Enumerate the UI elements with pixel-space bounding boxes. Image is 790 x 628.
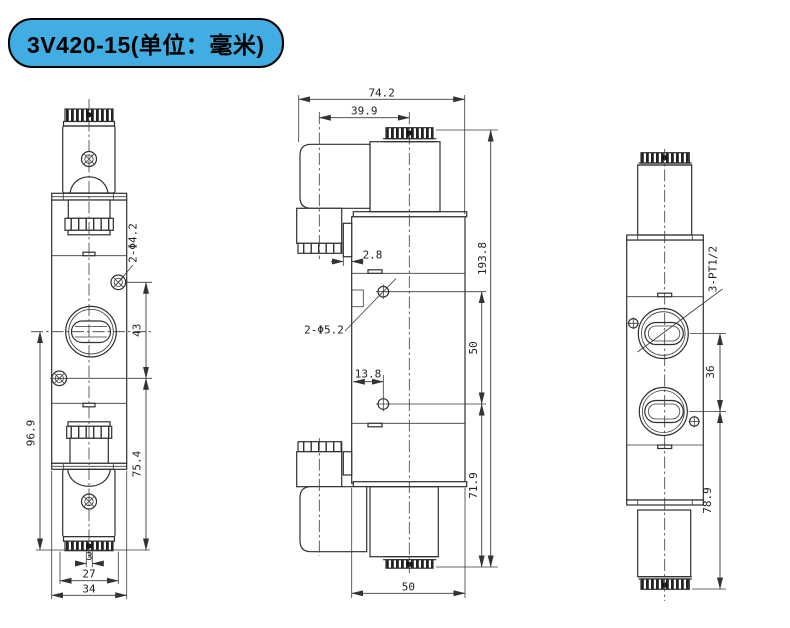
side-view: 74.2 39.9 193.8 2.8 2-Φ5.2 50 13.8 71.9 …: [297, 86, 498, 598]
side-connector-bottom: [300, 487, 367, 552]
dim-front-total-height: 96.9: [25, 420, 38, 447]
dim-side-lower-height: 71.9: [467, 472, 480, 499]
side-connector: [300, 144, 370, 208]
dim-end-lower-height: 78.9: [701, 487, 714, 514]
end-port-leader: [638, 289, 723, 352]
dim-front-body-width: 34: [82, 582, 96, 595]
dim-front-coil-width: 27: [82, 568, 95, 581]
dim-end-port-spacing: 36: [704, 365, 717, 378]
front-view: 2-Φ4.2 43 96.9 75.4 3 27 34: [25, 99, 153, 599]
side-hole-leader: [345, 279, 396, 332]
side-bottom-solenoid: [297, 442, 439, 569]
end-view: 3-PT1/2 36 78.9: [627, 149, 726, 601]
dim-front-lower-height: 75.4: [131, 450, 144, 477]
dim-side-total-width: 74.2: [368, 86, 395, 99]
side-top-solenoid: [297, 128, 440, 254]
dim-side-hole-spacing: 50: [467, 341, 480, 354]
drawing-page: 3V420-15(单位：毫米): [0, 0, 790, 628]
dim-side-coil-offset: 39.9: [351, 105, 378, 118]
dim-side-tab-depth: 2.8: [363, 249, 383, 262]
dim-end-port-callout: 3-PT1/2: [707, 246, 720, 292]
dim-side-hole-offset: 13.8: [355, 368, 382, 381]
dim-side-body-width: 50: [402, 580, 415, 593]
dim-side-total-height: 193.8: [476, 242, 489, 275]
end-port-top: [638, 309, 688, 359]
valve-drawing: 2-Φ4.2 43 96.9 75.4 3 27 34: [0, 0, 790, 628]
dim-front-hole-callout: 2-Φ4.2: [127, 223, 140, 263]
dim-front-hole-spacing: 43: [131, 324, 144, 337]
dim-front-pin-width: 3: [86, 550, 93, 563]
end-port-bottom: [639, 388, 687, 436]
dim-side-hole-callout: 2-Φ5.2: [304, 323, 344, 336]
